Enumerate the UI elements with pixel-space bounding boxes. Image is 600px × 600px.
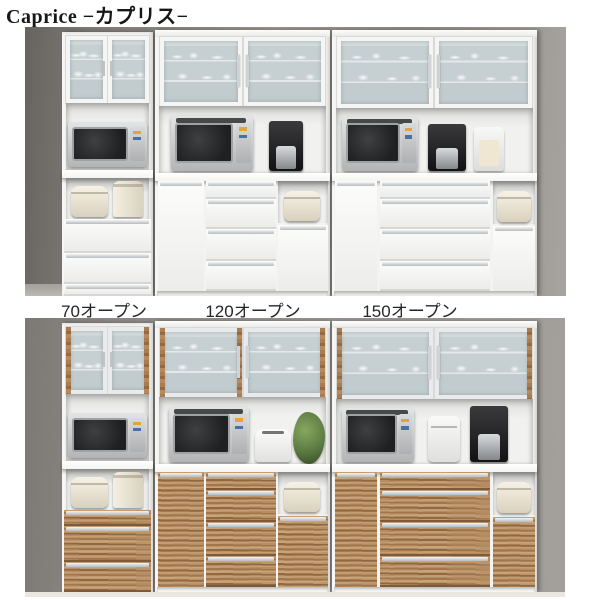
microwave-oven	[171, 116, 253, 171]
side-column	[278, 181, 328, 291]
drawer	[206, 472, 276, 490]
base-cabinet	[157, 472, 328, 587]
drawer	[206, 229, 276, 261]
photo-walnut-finish	[25, 318, 565, 597]
drawer-stack	[206, 181, 276, 291]
wood-stile	[320, 328, 325, 397]
rice-cooker	[284, 482, 320, 512]
floor	[25, 592, 565, 597]
drawer	[380, 522, 490, 556]
door-handle	[237, 55, 240, 87]
rice-cooker	[71, 477, 108, 508]
appliance-recess	[278, 472, 328, 514]
drawer	[64, 510, 151, 526]
door	[278, 516, 328, 589]
microwave-oven	[169, 407, 249, 462]
microwave-controls	[232, 414, 246, 455]
appliance-recess	[66, 469, 149, 510]
cabinet-70-white	[62, 32, 153, 296]
microwave-niche	[66, 394, 149, 461]
tall-door	[158, 472, 204, 589]
coffee-maker	[428, 124, 466, 171]
upper-glass-cabinet	[66, 327, 149, 394]
wood-stile	[337, 328, 342, 399]
drawer-stack	[206, 472, 276, 587]
rice-cooker	[497, 191, 531, 222]
drawer	[64, 562, 151, 592]
door-handle	[437, 55, 440, 88]
appliance-recess	[66, 178, 149, 219]
appliance-garage	[336, 108, 533, 173]
door-handle	[103, 61, 105, 76]
microwave-window	[346, 414, 398, 454]
coffee-maker	[269, 121, 303, 171]
drawer-stack	[380, 472, 490, 587]
bread-maker	[428, 416, 460, 462]
drawer-stack	[380, 181, 490, 291]
side-column	[493, 472, 535, 587]
microwave	[68, 413, 147, 458]
drawer	[380, 472, 490, 490]
wood-stile	[527, 328, 532, 399]
microwave-controls	[399, 414, 412, 454]
drawer	[206, 490, 276, 522]
appliance-garage	[159, 106, 326, 173]
microwave-oven	[342, 408, 414, 462]
wood-stile	[144, 327, 149, 394]
glass-door-left	[66, 327, 107, 394]
rice-cooker	[284, 191, 320, 221]
drawer	[206, 261, 276, 291]
sliding-glass-cabinet	[335, 328, 534, 399]
microwave	[68, 122, 147, 167]
electric-pot	[113, 181, 143, 217]
appliance-garage	[159, 397, 326, 464]
drawer	[64, 526, 151, 562]
sliding-glass-cabinet	[158, 37, 327, 106]
drawer	[380, 261, 490, 291]
microwave-controls	[130, 418, 144, 451]
sliding-door-rail	[332, 321, 537, 328]
door	[278, 225, 328, 293]
door-handle	[237, 346, 240, 378]
drawer	[64, 253, 151, 284]
glass-door-right	[108, 36, 149, 103]
drawer	[64, 284, 151, 296]
microwave-window	[72, 418, 128, 451]
cabinet-70-walnut	[62, 323, 153, 592]
side-column	[493, 181, 535, 291]
tall-door	[158, 181, 204, 293]
glass-door-right	[108, 327, 149, 394]
rice-cooker	[71, 186, 108, 217]
drawer	[206, 181, 276, 199]
sliding-glass-door-right	[244, 37, 325, 106]
drawer	[206, 199, 276, 229]
door-handle	[428, 346, 431, 379]
potted-plant	[293, 412, 325, 464]
drawer	[206, 556, 276, 587]
drawer	[64, 219, 151, 253]
appliance-recess	[493, 181, 535, 224]
food-processor	[474, 127, 504, 171]
sliding-glass-cabinet	[335, 37, 534, 108]
door	[493, 226, 535, 293]
appliance-garage	[336, 399, 533, 464]
tall-door	[335, 472, 377, 589]
sliding-glass-door-left	[337, 328, 433, 399]
base-cabinet	[334, 472, 535, 587]
door-handle	[246, 346, 249, 378]
microwave-window	[175, 123, 233, 164]
door	[493, 517, 535, 589]
cabinet-120-white	[155, 30, 330, 296]
drawer	[380, 181, 490, 199]
rice-cooker	[497, 482, 531, 513]
toaster	[255, 429, 291, 462]
photo-white-finish	[25, 27, 566, 296]
microwave-oven	[342, 117, 418, 171]
drawer	[380, 229, 490, 261]
floor	[25, 284, 65, 296]
drawer	[380, 556, 490, 587]
door-handle	[110, 352, 112, 367]
sliding-glass-door-left	[160, 37, 242, 106]
sliding-glass-door-right	[435, 328, 532, 399]
microwave-controls	[130, 127, 144, 160]
door-handle	[428, 55, 431, 88]
door-handle	[437, 346, 440, 379]
drawer-stack	[64, 219, 151, 296]
sliding-glass-door-right	[244, 328, 325, 397]
side-column	[278, 472, 328, 587]
upper-glass-cabinet	[66, 36, 149, 103]
tall-door	[335, 181, 377, 293]
microwave-window	[346, 123, 400, 163]
appliance-recess	[278, 181, 328, 223]
door-handle	[103, 352, 105, 367]
microwave-window	[173, 414, 230, 455]
sliding-door-rail	[155, 30, 330, 37]
product-title: Caprice −カプリス−	[6, 0, 189, 29]
electric-pot	[113, 472, 143, 508]
base-cabinet	[334, 181, 535, 291]
cabinet-120-walnut	[155, 321, 330, 592]
sliding-door-rail	[155, 321, 330, 328]
glass-door-left	[66, 36, 107, 103]
base-cabinet	[157, 181, 328, 291]
variant-labels: 70オープン 120オープン 150オープン	[0, 296, 600, 318]
sliding-glass-door-right	[435, 37, 532, 108]
drawer	[380, 199, 490, 229]
sliding-door-rail	[332, 30, 537, 37]
sliding-glass-door-left	[337, 37, 433, 108]
cabinet-150-walnut	[332, 321, 537, 592]
sliding-glass-door-left	[160, 328, 242, 397]
wood-stile	[160, 328, 165, 397]
drawer	[206, 522, 276, 556]
microwave-niche	[66, 103, 149, 170]
door-handle	[110, 61, 112, 76]
microwave-controls	[402, 123, 416, 163]
door-handle	[246, 55, 249, 87]
product-image: Caprice −カプリス−	[0, 0, 600, 600]
sliding-glass-cabinet	[158, 328, 327, 397]
wood-stile	[66, 327, 71, 394]
microwave-controls	[236, 123, 251, 164]
microwave-window	[72, 127, 128, 160]
cabinet-150-white	[332, 30, 537, 296]
drawer-stack	[64, 510, 151, 592]
coffee-maker	[470, 406, 508, 462]
appliance-recess	[493, 472, 535, 515]
drawer	[380, 490, 490, 522]
